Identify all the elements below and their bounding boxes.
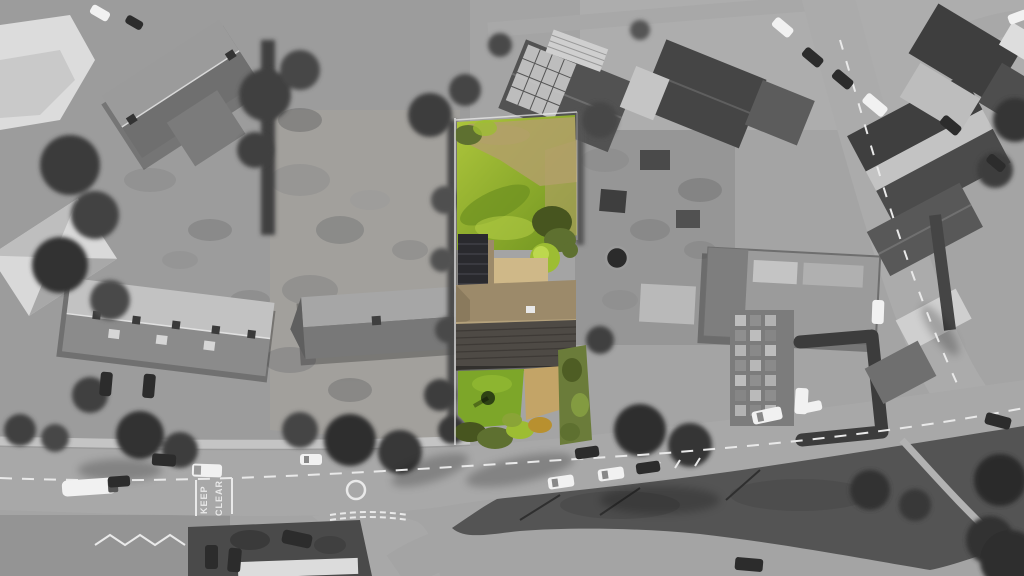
car xyxy=(142,374,156,399)
car xyxy=(734,557,763,572)
car xyxy=(794,388,808,415)
van xyxy=(872,300,885,324)
trampoline xyxy=(606,247,628,269)
car xyxy=(227,548,242,573)
car xyxy=(108,475,131,488)
chimney xyxy=(526,306,535,313)
van xyxy=(192,463,222,477)
car xyxy=(99,372,113,397)
pallet-yard xyxy=(730,310,794,426)
keep-clear-keep: KEEP xyxy=(199,485,209,514)
car xyxy=(152,453,177,467)
car xyxy=(205,545,218,569)
main-house-roof xyxy=(456,280,576,371)
aerial-photo-canvas: KEEP CLEAR xyxy=(0,0,1024,576)
keep-clear-clear: CLEAR xyxy=(214,480,224,516)
aerial-photo: KEEP CLEAR xyxy=(0,0,1024,576)
side-hedge xyxy=(558,345,592,445)
car xyxy=(300,454,322,465)
patio xyxy=(639,284,696,325)
